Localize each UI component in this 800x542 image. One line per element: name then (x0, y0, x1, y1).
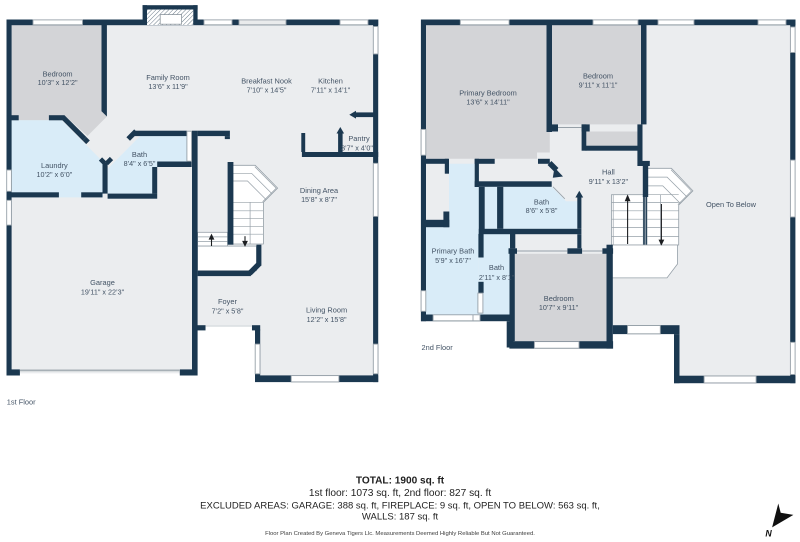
svg-text:N: N (765, 529, 772, 539)
svg-text:Open To Below: Open To Below (706, 200, 757, 209)
svg-text:Bedroom: Bedroom (583, 72, 613, 81)
svg-text:8’4" x 6’5": 8’4" x 6’5" (124, 159, 156, 168)
svg-text:Pantry: Pantry (348, 134, 370, 143)
svg-text:Garage: Garage (90, 278, 115, 287)
svg-text:Breakfast Nook: Breakfast Nook (241, 77, 292, 86)
svg-text:Bedroom: Bedroom (43, 69, 73, 78)
svg-text:Laundry: Laundry (41, 161, 68, 170)
svg-text:1st Floor: 1st Floor (7, 397, 36, 406)
svg-text:9’11" x 11’1": 9’11" x 11’1" (579, 81, 618, 90)
svg-text:5’9" x 16’7": 5’9" x 16’7" (435, 256, 471, 265)
svg-text:EXCLUDED AREAS: GARAGE: 388 sq: EXCLUDED AREAS: GARAGE: 388 sq. ft, FIRE… (200, 501, 600, 512)
svg-text:10’2" x 6’0": 10’2" x 6’0" (36, 170, 72, 179)
svg-text:7’11" x 14’1": 7’11" x 14’1" (311, 86, 351, 95)
svg-text:12’2" x 15’8": 12’2" x 15’8" (307, 315, 347, 324)
svg-text:TOTAL: 1900 sq. ft: TOTAL: 1900 sq. ft (356, 476, 445, 487)
svg-text:Living Room: Living Room (306, 306, 347, 315)
svg-text:WALLS: 187 sq. ft: WALLS: 187 sq. ft (362, 512, 439, 523)
svg-text:19’11" x 22’3": 19’11" x 22’3" (81, 287, 125, 296)
svg-text:Bath: Bath (132, 150, 147, 159)
svg-text:3’7" x 4’0": 3’7" x 4’0" (341, 143, 373, 152)
svg-text:Floor Plan Created By Geneva T: Floor Plan Created By Geneva Tigers Llc.… (265, 531, 535, 537)
svg-text:10’3" x 12’2": 10’3" x 12’2" (38, 78, 78, 87)
svg-text:Bedroom: Bedroom (544, 294, 574, 303)
svg-text:13’6" x 11’9": 13’6" x 11’9" (148, 82, 188, 91)
svg-text:Primary Bath: Primary Bath (432, 247, 475, 256)
svg-text:1st floor: 1073 sq. ft, 2nd fl: 1st floor: 1073 sq. ft, 2nd floor: 827 s… (309, 488, 492, 499)
svg-text:2nd Floor: 2nd Floor (422, 343, 454, 352)
svg-text:13’6" x 14’11": 13’6" x 14’11" (466, 98, 510, 107)
svg-text:Hall: Hall (602, 168, 615, 177)
svg-text:15’8" x 8’7": 15’8" x 8’7" (301, 195, 337, 204)
svg-text:Kitchen: Kitchen (318, 77, 343, 86)
svg-text:Foyer: Foyer (218, 297, 237, 306)
svg-text:7’10" x 14’5": 7’10" x 14’5" (247, 86, 287, 95)
svg-text:Dining Area: Dining Area (300, 186, 339, 195)
svg-text:Family Room: Family Room (146, 73, 190, 82)
svg-text:Bath: Bath (489, 263, 504, 272)
svg-text:9’11" x 13’2": 9’11" x 13’2" (589, 177, 629, 186)
svg-text:8’6" x 5’8": 8’6" x 5’8" (526, 206, 558, 215)
svg-text:Primary Bedroom: Primary Bedroom (459, 89, 517, 98)
svg-text:2’11" x 8’1": 2’11" x 8’1" (479, 273, 515, 282)
svg-text:7’2" x 5’8": 7’2" x 5’8" (212, 306, 244, 315)
svg-text:10’7" x 9’11": 10’7" x 9’11" (539, 303, 579, 312)
